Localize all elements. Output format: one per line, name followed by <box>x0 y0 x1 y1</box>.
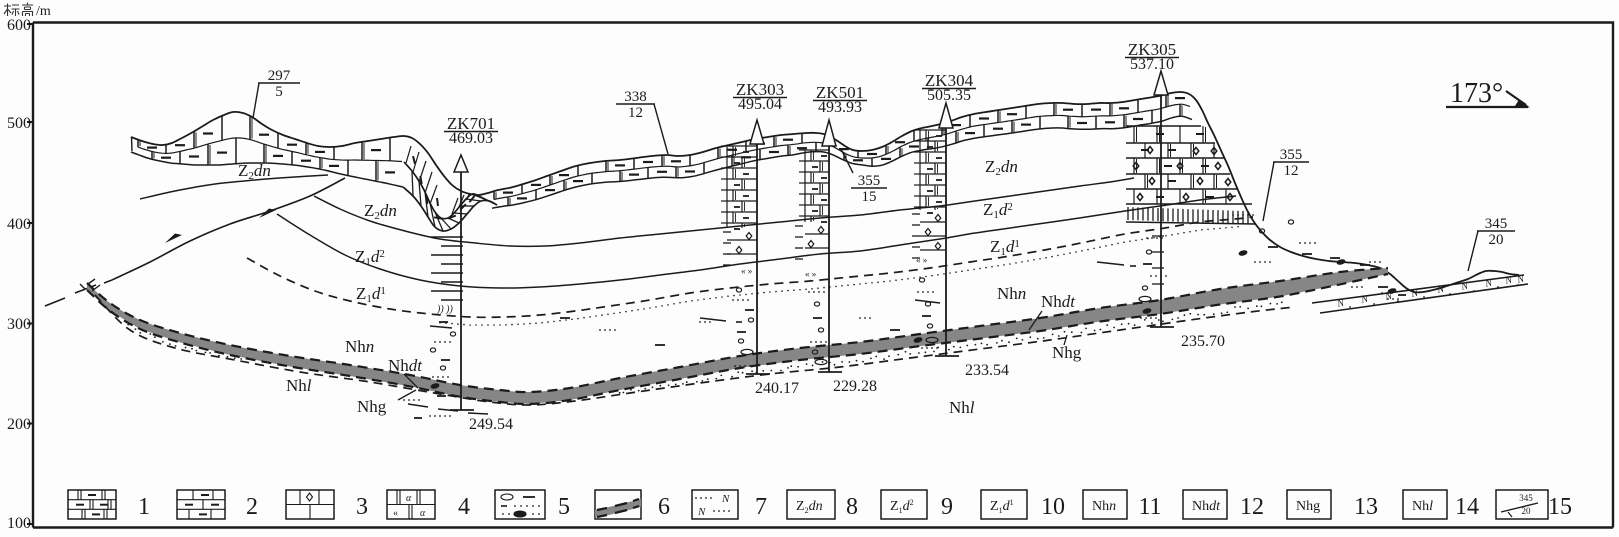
svg-text:Nhdt: Nhdt <box>1041 292 1076 311</box>
svg-text:/m: /m <box>36 4 51 19</box>
svg-text:2: 2 <box>246 494 258 520</box>
svg-text:12: 12 <box>628 105 643 121</box>
svg-text:200: 200 <box>7 416 31 433</box>
svg-text:500: 500 <box>7 115 31 132</box>
svg-text:7: 7 <box>755 494 767 520</box>
svg-text:9: 9 <box>941 494 953 520</box>
svg-text:6: 6 <box>658 494 670 520</box>
svg-text:Nhdt: Nhdt <box>1192 499 1221 514</box>
svg-text:« »: « » <box>805 269 816 279</box>
svg-text:355: 355 <box>858 173 881 189</box>
svg-text:Nhg: Nhg <box>357 397 387 416</box>
svg-text:345: 345 <box>1485 216 1508 232</box>
svg-text:493.93: 493.93 <box>818 99 862 116</box>
svg-text:240.17: 240.17 <box>755 380 799 397</box>
svg-text:4: 4 <box>458 494 470 520</box>
svg-text:Nhg: Nhg <box>1296 499 1320 514</box>
svg-text:11: 11 <box>1138 494 1161 520</box>
svg-text:15: 15 <box>862 189 877 205</box>
svg-text:Nhg: Nhg <box>1052 343 1082 362</box>
svg-text:233.54: 233.54 <box>965 362 1009 379</box>
svg-text:297: 297 <box>268 68 291 84</box>
svg-text:10: 10 <box>1041 494 1065 520</box>
svg-text:Nhn: Nhn <box>1092 499 1116 514</box>
svg-text:15: 15 <box>1548 494 1572 520</box>
svg-text:3: 3 <box>356 494 368 520</box>
svg-text:505.35: 505.35 <box>927 87 971 104</box>
svg-text:5: 5 <box>558 494 570 520</box>
svg-text:«: « <box>393 508 398 519</box>
svg-text:300: 300 <box>7 316 31 333</box>
svg-text:Z2dn: Z2dn <box>796 499 823 515</box>
svg-text:Z2dn: Z2dn <box>985 157 1018 178</box>
svg-text:Nhl: Nhl <box>949 398 975 417</box>
svg-text:Nhdt: Nhdt <box>388 356 423 375</box>
svg-text:469.03: 469.03 <box>449 130 493 147</box>
svg-text:Z2dn: Z2dn <box>364 201 397 222</box>
svg-text:600: 600 <box>7 17 31 34</box>
svg-text:Nhn: Nhn <box>997 284 1026 303</box>
svg-text:Nhl: Nhl <box>286 376 312 395</box>
svg-text:5: 5 <box>275 84 283 100</box>
svg-text:400: 400 <box>7 216 31 233</box>
svg-text:Z2dn: Z2dn <box>238 161 271 182</box>
svg-text:1: 1 <box>138 494 150 520</box>
svg-text:N: N <box>697 506 706 518</box>
svg-text:338: 338 <box>624 89 647 105</box>
svg-text:537.10: 537.10 <box>1130 56 1174 73</box>
svg-text:249.54: 249.54 <box>469 416 513 433</box>
svg-text:12: 12 <box>1240 494 1264 520</box>
svg-text:345: 345 <box>1519 493 1533 503</box>
svg-text:20: 20 <box>1522 506 1532 516</box>
svg-text:100: 100 <box>7 515 31 532</box>
svg-text:495.04: 495.04 <box>738 96 782 113</box>
svg-text:12: 12 <box>1284 163 1299 179</box>
svg-text:)) )): )) )) <box>436 304 453 315</box>
svg-text:Nhn: Nhn <box>345 337 374 356</box>
svg-text:229.28: 229.28 <box>833 378 877 395</box>
svg-text:355: 355 <box>1280 147 1303 163</box>
svg-text:α: α <box>406 493 412 504</box>
svg-text:14: 14 <box>1455 494 1479 520</box>
svg-text:N: N <box>721 493 730 505</box>
svg-text:235.70: 235.70 <box>1181 333 1225 350</box>
svg-text:α: α <box>420 508 426 519</box>
svg-text:13: 13 <box>1354 494 1378 520</box>
svg-text:Nhl: Nhl <box>1412 499 1433 514</box>
svg-text:« »: « » <box>916 255 927 265</box>
svg-text:20: 20 <box>1489 232 1504 248</box>
svg-text:8: 8 <box>846 494 858 520</box>
svg-text:« »: « » <box>741 266 752 276</box>
svg-text:173°: 173° <box>1450 78 1503 109</box>
